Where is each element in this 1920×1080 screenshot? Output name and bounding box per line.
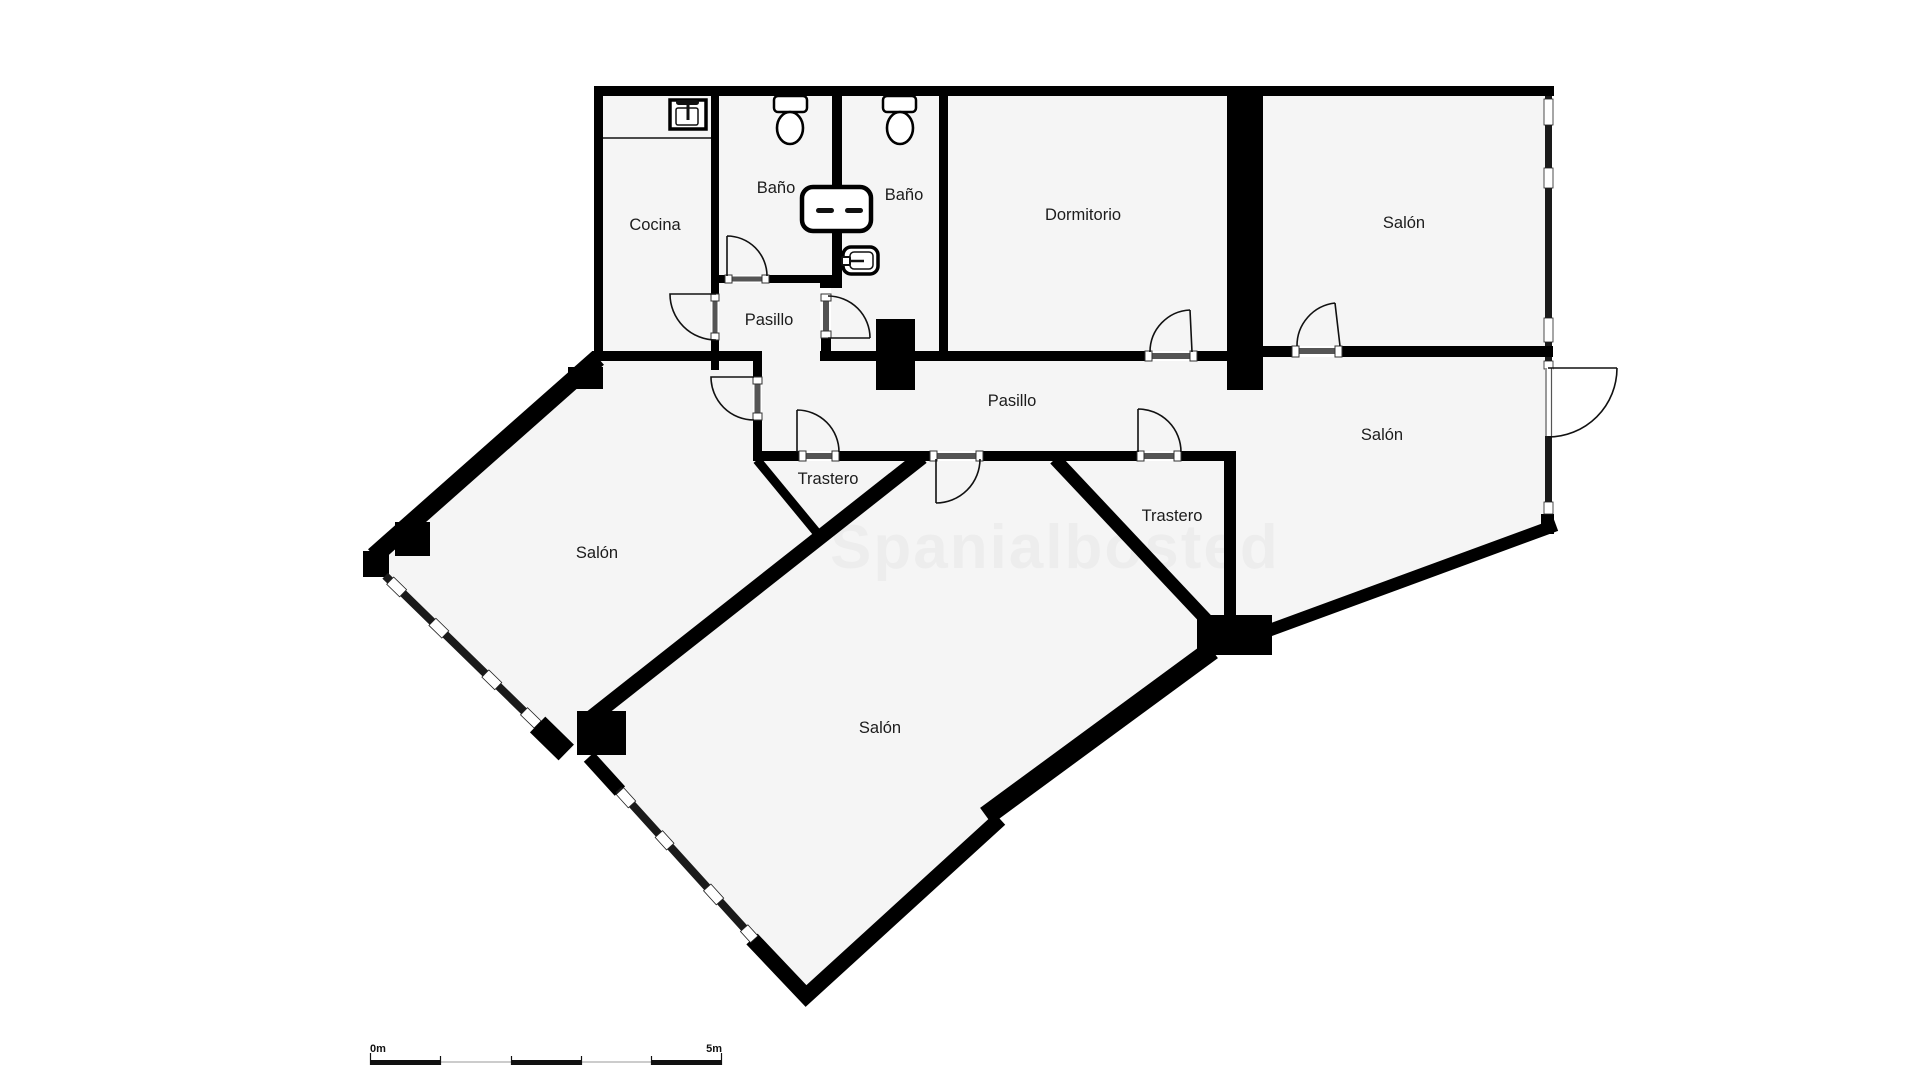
svg-text:Salón: Salón — [1383, 214, 1425, 232]
svg-text:Salón: Salón — [576, 544, 618, 562]
svg-text:Salón: Salón — [1361, 426, 1403, 444]
svg-text:Baño: Baño — [757, 179, 796, 197]
svg-text:Spanialbosted: Spanialbosted — [830, 513, 1280, 582]
svg-text:Salón: Salón — [859, 719, 901, 737]
svg-text:Dormitorio: Dormitorio — [1045, 206, 1121, 224]
svg-text:Trastero: Trastero — [1142, 507, 1203, 525]
svg-text:0m: 0m — [370, 1043, 386, 1055]
svg-text:Trastero: Trastero — [798, 470, 859, 488]
svg-text:Cocina: Cocina — [629, 216, 681, 234]
svg-text:Baño: Baño — [885, 186, 924, 204]
svg-text:Pasillo: Pasillo — [988, 392, 1037, 410]
svg-text:5m: 5m — [706, 1043, 722, 1055]
svg-text:Pasillo: Pasillo — [745, 311, 794, 329]
